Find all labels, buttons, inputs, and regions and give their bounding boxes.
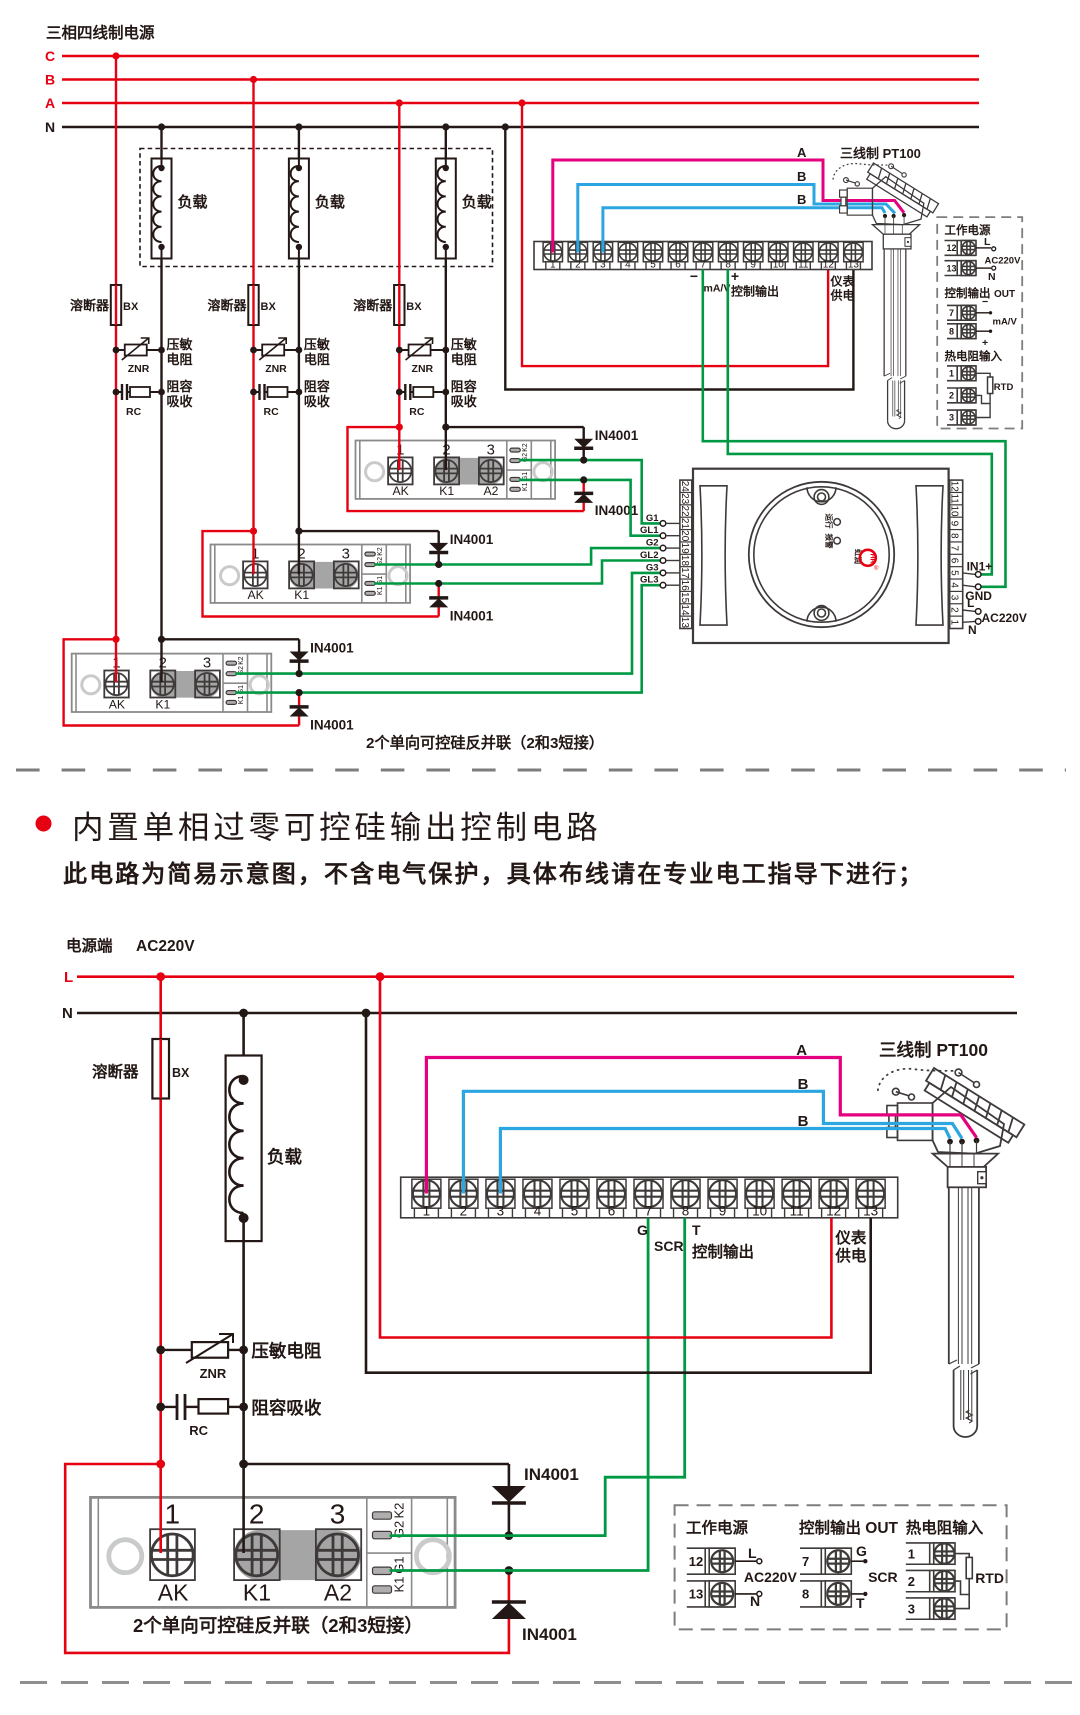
svg-text:N: N — [62, 1005, 73, 1022]
svg-text:AK: AK — [109, 697, 125, 711]
svg-text:14: 14 — [679, 604, 690, 616]
svg-text:B: B — [45, 72, 55, 88]
svg-text:2: 2 — [249, 1498, 265, 1529]
svg-text:22: 22 — [679, 505, 690, 517]
svg-text:BX: BX — [406, 301, 422, 313]
svg-text:3: 3 — [497, 1204, 505, 1219]
svg-text:压敏: 压敏 — [304, 337, 331, 352]
svg-text:13: 13 — [679, 617, 690, 629]
svg-text:17: 17 — [679, 567, 690, 579]
svg-text:K1: K1 — [238, 696, 245, 705]
svg-text:3: 3 — [203, 655, 211, 671]
svg-text:13: 13 — [863, 1204, 878, 1219]
svg-text:mA/V: mA/V — [704, 283, 731, 295]
svg-text:A: A — [796, 1042, 807, 1059]
svg-text:8: 8 — [949, 533, 960, 539]
svg-text:3: 3 — [600, 260, 606, 271]
svg-text:20: 20 — [679, 530, 690, 542]
svg-text:7: 7 — [949, 308, 954, 318]
svg-text:A2: A2 — [484, 484, 499, 498]
svg-text:BX: BX — [172, 1066, 190, 1080]
svg-text:G: G — [637, 1222, 648, 1238]
svg-text:4: 4 — [534, 1204, 542, 1219]
svg-text:IN4001: IN4001 — [450, 609, 494, 624]
svg-text:K2: K2 — [377, 547, 384, 556]
svg-text:IN4001: IN4001 — [595, 503, 639, 518]
svg-text:8: 8 — [682, 1204, 690, 1219]
svg-text:RC: RC — [409, 406, 425, 418]
svg-text:A: A — [797, 145, 807, 160]
svg-text:溶断器: 溶断器 — [92, 1062, 139, 1081]
svg-text:工作电源: 工作电源 — [945, 223, 991, 237]
svg-text:ZNR: ZNR — [200, 1366, 227, 1381]
svg-text:N: N — [45, 119, 55, 135]
svg-text:GL1: GL1 — [640, 525, 659, 536]
svg-text:工作电源: 工作电源 — [686, 1518, 749, 1537]
svg-text:溶断器: 溶断器 — [353, 298, 393, 313]
svg-text:−: − — [690, 268, 698, 284]
svg-text:B: B — [798, 1113, 809, 1130]
svg-text:阻容: 阻容 — [451, 379, 477, 394]
svg-text:K2: K2 — [522, 443, 529, 452]
svg-text:L: L — [967, 596, 974, 610]
svg-text:负载: 负载 — [267, 1147, 302, 1167]
svg-text:A: A — [45, 95, 55, 111]
svg-text:3: 3 — [949, 413, 954, 423]
svg-text:G3: G3 — [646, 562, 659, 573]
svg-text:6: 6 — [949, 558, 960, 564]
svg-text:12: 12 — [826, 1204, 841, 1219]
svg-text:IN4001: IN4001 — [524, 1465, 579, 1484]
svg-text:7: 7 — [949, 545, 960, 551]
svg-text:1: 1 — [949, 369, 954, 379]
svg-text:电源端: 电源端 — [66, 936, 113, 955]
svg-text:控制输出 OUT: 控制输出 OUT — [799, 1518, 899, 1537]
svg-text:11: 11 — [790, 1204, 804, 1219]
svg-text:N: N — [750, 1593, 760, 1609]
svg-text:B: B — [797, 192, 806, 207]
svg-text:负载: 负载 — [315, 193, 345, 211]
svg-text:负载: 负载 — [462, 193, 492, 211]
svg-text:此电路为简易示意图，不含电气保护，具体布线请在专业电工指导下: 此电路为简易示意图，不含电气保护，具体布线请在专业电工指导下进行； — [63, 860, 924, 888]
svg-text:K2: K2 — [238, 656, 245, 665]
svg-text:供电: 供电 — [834, 1246, 867, 1265]
svg-text:ZNR: ZNR — [412, 363, 434, 375]
svg-text:IN4001: IN4001 — [522, 1625, 577, 1644]
svg-text:N: N — [988, 271, 996, 283]
svg-text:三线制 PT100: 三线制 PT100 — [879, 1040, 988, 1060]
svg-text:A2: A2 — [324, 1579, 352, 1605]
svg-text:10: 10 — [949, 505, 960, 517]
svg-text:16: 16 — [679, 580, 690, 592]
svg-text:N: N — [968, 623, 977, 637]
svg-text:RTD: RTD — [975, 1570, 1004, 1586]
svg-text:L: L — [64, 969, 73, 986]
svg-text:5: 5 — [571, 1204, 579, 1219]
svg-text:B: B — [797, 169, 806, 184]
svg-text:ZNR: ZNR — [128, 363, 150, 375]
svg-text:吸收: 吸收 — [167, 394, 194, 409]
svg-text:RC: RC — [126, 406, 142, 418]
svg-text:K1: K1 — [294, 588, 309, 602]
svg-text:溶断器: 溶断器 — [70, 298, 110, 313]
svg-text:RC: RC — [189, 1423, 208, 1438]
svg-text:负载: 负载 — [178, 193, 208, 211]
svg-text:18: 18 — [679, 555, 690, 567]
svg-text:1: 1 — [908, 1546, 915, 1561]
svg-text:K2: K2 — [392, 1503, 407, 1519]
svg-text:C: C — [45, 48, 55, 64]
svg-text:供电: 供电 — [830, 288, 855, 303]
svg-text:4: 4 — [949, 582, 960, 588]
svg-text:G2: G2 — [646, 538, 659, 549]
svg-text:BX: BX — [261, 301, 277, 313]
svg-text:OUT: OUT — [994, 289, 1015, 300]
svg-text:2: 2 — [949, 391, 954, 401]
svg-text:8: 8 — [802, 1587, 809, 1602]
svg-text:热电阻输入: 热电阻输入 — [906, 1518, 984, 1537]
svg-text:HR: HR — [869, 554, 876, 564]
svg-text:2: 2 — [949, 607, 960, 613]
svg-text:K1: K1 — [155, 697, 170, 711]
svg-text:G: G — [856, 1543, 867, 1559]
svg-text:B: B — [798, 1076, 809, 1093]
svg-text:11: 11 — [798, 260, 809, 271]
svg-text:运行: 运行 — [825, 514, 835, 529]
svg-text:RC: RC — [264, 406, 280, 418]
svg-text:压敏: 压敏 — [451, 337, 478, 352]
svg-text:控制输出: 控制输出 — [731, 284, 779, 299]
svg-text:9: 9 — [719, 1204, 727, 1219]
svg-text:11: 11 — [949, 493, 960, 504]
svg-text:L: L — [984, 236, 991, 248]
svg-text:5: 5 — [650, 260, 656, 271]
svg-text:ZNR: ZNR — [265, 363, 287, 375]
svg-text:2: 2 — [908, 1574, 915, 1589]
svg-text:AC220V: AC220V — [136, 938, 195, 955]
svg-text:T: T — [856, 1595, 865, 1611]
svg-text:AK: AK — [393, 484, 409, 498]
svg-text:13: 13 — [947, 263, 957, 273]
svg-text:21: 21 — [679, 518, 690, 530]
svg-text:7: 7 — [700, 260, 706, 271]
svg-text:阻容: 阻容 — [304, 379, 330, 394]
svg-text:SCR: SCR — [868, 1569, 898, 1585]
svg-text:溶断器: 溶断器 — [208, 298, 248, 313]
svg-text:+: + — [982, 337, 988, 349]
svg-text:吸收: 吸收 — [451, 394, 478, 409]
svg-text:10: 10 — [752, 1204, 767, 1219]
svg-text:6: 6 — [675, 260, 681, 271]
svg-text:AC220V: AC220V — [744, 1569, 798, 1585]
svg-text:热电阻输入: 热电阻输入 — [945, 349, 1003, 363]
svg-text:IN4001: IN4001 — [310, 640, 354, 655]
svg-text:mA/V: mA/V — [993, 317, 1018, 328]
svg-text:4: 4 — [625, 260, 631, 271]
svg-text:BX: BX — [123, 301, 139, 313]
svg-text:1: 1 — [165, 1498, 181, 1529]
svg-text:−: − — [982, 296, 988, 308]
svg-text:15: 15 — [679, 592, 690, 604]
svg-text:内置单相过零可控硅输出控制电路: 内置单相过零可控硅输出控制电路 — [72, 809, 602, 845]
svg-text:+: + — [731, 268, 739, 284]
svg-text:RTD: RTD — [994, 382, 1014, 393]
svg-text:2个单向可控硅反并联（2和3短接）: 2个单向可控硅反并联（2和3短接） — [133, 1615, 423, 1636]
svg-text:T: T — [692, 1222, 701, 1238]
svg-text:12: 12 — [823, 260, 835, 271]
svg-text:6: 6 — [608, 1204, 616, 1219]
svg-text:G1: G1 — [646, 513, 659, 524]
svg-text:12: 12 — [689, 1554, 703, 1569]
svg-text:3: 3 — [908, 1601, 915, 1616]
svg-text:SCR: SCR — [654, 1238, 684, 1254]
svg-text:K1: K1 — [522, 482, 529, 491]
svg-text:®: ® — [874, 565, 879, 572]
svg-text:AK: AK — [248, 588, 264, 602]
svg-text:AK: AK — [158, 1579, 189, 1605]
svg-text:电阻: 电阻 — [167, 352, 193, 367]
svg-text:K1: K1 — [439, 484, 454, 498]
svg-text:IN4001: IN4001 — [595, 428, 639, 443]
svg-text:仪表: 仪表 — [834, 1228, 867, 1247]
svg-text:仪表: 仪表 — [830, 274, 856, 289]
svg-text:3: 3 — [487, 442, 495, 458]
svg-text:3: 3 — [342, 546, 350, 562]
svg-text:12: 12 — [947, 243, 957, 253]
svg-text:三相四线制电源: 三相四线制电源 — [46, 23, 155, 42]
svg-text:电阻: 电阻 — [451, 352, 477, 367]
svg-text:7: 7 — [802, 1554, 809, 1569]
svg-text:K1: K1 — [243, 1579, 271, 1605]
svg-text:报警: 报警 — [825, 534, 835, 549]
svg-text:1: 1 — [423, 1204, 431, 1219]
svg-text:压敏电阻: 压敏电阻 — [251, 1341, 321, 1361]
svg-text:GL3: GL3 — [640, 575, 658, 586]
svg-text:吸收: 吸收 — [304, 394, 331, 409]
svg-text:10: 10 — [773, 260, 785, 271]
svg-text:L: L — [748, 1545, 757, 1561]
svg-text:1: 1 — [550, 260, 556, 271]
svg-text:2: 2 — [460, 1204, 468, 1219]
svg-text:24: 24 — [679, 481, 690, 493]
svg-text:2: 2 — [575, 260, 581, 271]
svg-text:电阻: 电阻 — [304, 352, 330, 367]
svg-text:3: 3 — [330, 1498, 346, 1529]
svg-text:12: 12 — [949, 481, 960, 493]
svg-text:13: 13 — [689, 1587, 703, 1602]
svg-text:1: 1 — [949, 620, 960, 626]
svg-text:5: 5 — [949, 570, 960, 576]
svg-text:IN4001: IN4001 — [450, 532, 494, 547]
svg-text:IN1+: IN1+ — [967, 560, 993, 574]
svg-text:AC220V: AC220V — [982, 611, 1027, 625]
svg-text:13: 13 — [848, 260, 860, 271]
svg-text:控制输出: 控制输出 — [692, 1242, 754, 1261]
svg-text:9: 9 — [750, 260, 756, 271]
svg-text:三线制 PT100: 三线制 PT100 — [840, 146, 921, 161]
svg-text:9: 9 — [949, 521, 960, 527]
svg-text:2个单向可控硅反并联（2和3短接）: 2个单向可控硅反并联（2和3短接） — [366, 734, 604, 752]
svg-text:8: 8 — [949, 326, 954, 336]
svg-text:7: 7 — [645, 1204, 653, 1219]
svg-text:19: 19 — [679, 543, 690, 555]
svg-text:23: 23 — [679, 493, 690, 505]
svg-text:K1: K1 — [377, 586, 384, 595]
svg-text:GL2: GL2 — [640, 550, 658, 561]
svg-text:IN4001: IN4001 — [310, 718, 354, 733]
svg-text:3: 3 — [949, 595, 960, 601]
svg-text:K1: K1 — [392, 1577, 407, 1593]
svg-text:压敏: 压敏 — [167, 337, 194, 352]
svg-text:AC220V: AC220V — [985, 256, 1022, 267]
svg-text:阻容吸收: 阻容吸收 — [251, 1398, 321, 1418]
svg-text:阻容: 阻容 — [167, 379, 193, 394]
